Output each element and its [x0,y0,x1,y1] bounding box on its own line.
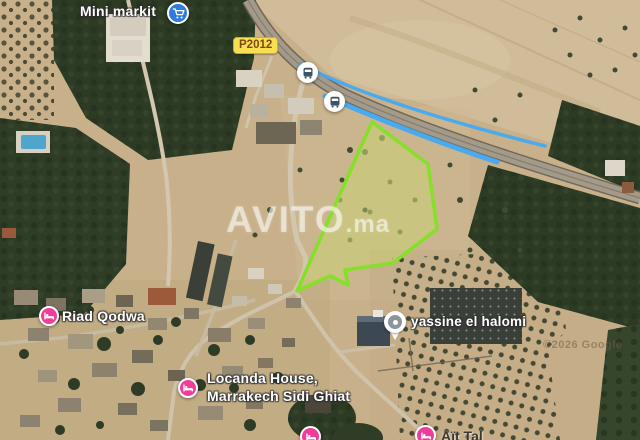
road-shield-p2012: P2012 [233,37,278,54]
hotel-pin-bottom-right[interactable] [415,425,436,440]
poi-label-mini-markit[interactable]: Mini markit [80,3,156,19]
hotel-pin-riad-qodwa[interactable] [39,306,59,326]
poi-label-riad-qodwa[interactable]: Riad Qodwa [62,308,145,324]
bus-icon [329,96,341,108]
avito-brand-text: AVITO [226,199,346,240]
bus-stop-pin-north[interactable] [297,62,318,83]
poi-label-locanda-line1[interactable]: Locanda House, [207,370,318,386]
bus-stop-pin-south[interactable] [324,91,345,112]
map-attribution: ©2026 Google [543,339,623,351]
avito-watermark: AVITO.ma [226,199,390,241]
satellite-map: Mini markit P2012 Riad Qodwa [0,0,640,440]
generic-place-icon [384,311,406,333]
poi-label-bottom-right-partial[interactable]: Aït Tal [441,428,483,440]
shopping-cart-icon [172,7,185,20]
avito-tld-text: .ma [346,211,390,238]
poi-label-yassine-el-halomi[interactable]: yassine el halomi [411,314,526,329]
bed-icon [305,431,317,440]
shopping-cart-pin[interactable] [167,2,189,24]
bed-icon [182,382,194,394]
poi-label-locanda-line2[interactable]: Marrakech Sidi Ghiat [207,388,350,404]
hotel-pin-locanda-house[interactable] [178,378,198,398]
bed-icon [420,430,432,440]
hotel-pin-bottom-left[interactable] [300,426,321,440]
bus-icon [302,67,314,79]
generic-place-pin[interactable] [384,311,406,341]
bed-icon [43,310,55,322]
